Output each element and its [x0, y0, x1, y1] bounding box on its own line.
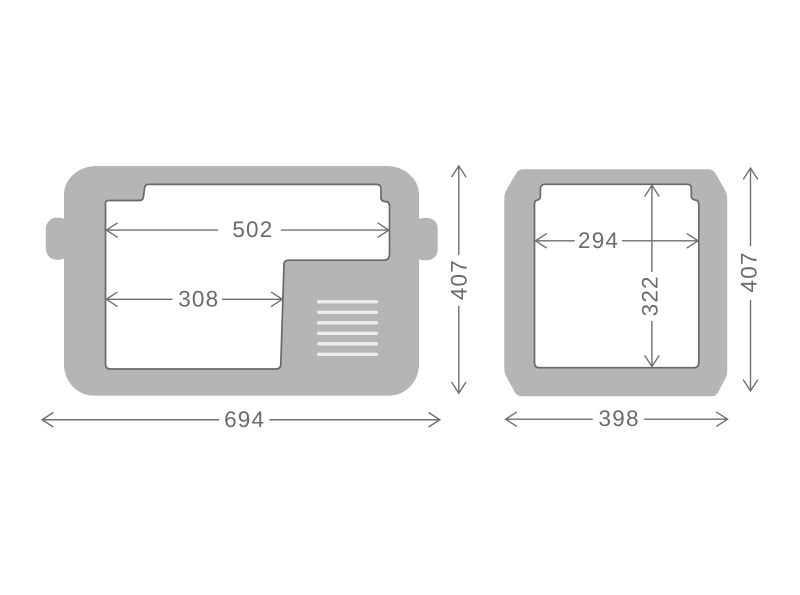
svg-text:322: 322: [637, 275, 662, 316]
svg-text:407: 407: [446, 259, 471, 300]
svg-text:502: 502: [232, 217, 273, 242]
svg-text:398: 398: [599, 406, 640, 431]
svg-text:694: 694: [224, 407, 265, 432]
svg-text:294: 294: [578, 228, 619, 253]
svg-text:308: 308: [178, 286, 219, 311]
svg-text:407: 407: [736, 251, 761, 292]
